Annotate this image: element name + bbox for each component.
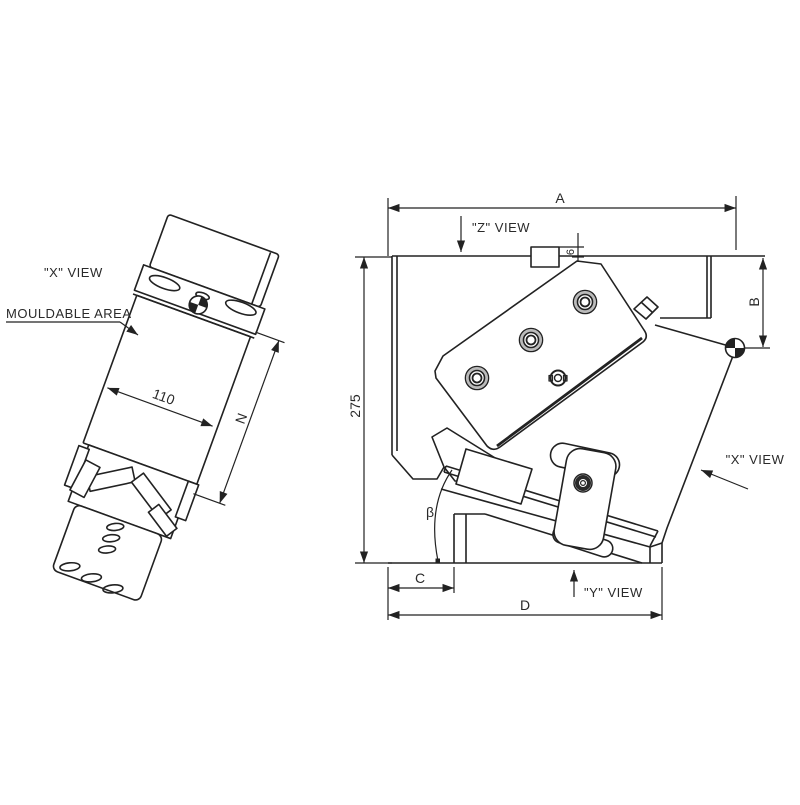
left-view-label: "X" VIEW <box>44 265 103 280</box>
dim-beta <box>435 470 452 563</box>
x-view-arrow <box>701 470 748 489</box>
dim-label-a: A <box>555 190 565 206</box>
right-view: A 275 B 6 C D <box>347 190 785 620</box>
drawing-sheet: 110 N "X" VIEW MOULDABLE AREA <box>0 0 800 800</box>
left-view: 110 N "X" VIEW MOULDABLE AREA <box>6 212 312 622</box>
dim-label-beta: β <box>426 504 434 520</box>
z-view-label: "Z" VIEW <box>472 220 530 235</box>
dim-label-275: 275 <box>347 394 363 418</box>
y-view-label: "Y" VIEW <box>584 585 643 600</box>
dim-label-n: N <box>232 411 250 426</box>
datum-target-icon <box>726 339 745 358</box>
plate-tab <box>634 297 658 319</box>
stop-block <box>531 247 559 267</box>
foot-step <box>454 514 485 563</box>
dim-label-6: 6 <box>565 249 577 255</box>
x-view-label: "X" VIEW <box>726 452 785 467</box>
mouldable-area-label: MOULDABLE AREA <box>6 306 132 321</box>
tilted-plate <box>435 261 646 449</box>
technical-drawing: 110 N "X" VIEW MOULDABLE AREA <box>0 0 800 800</box>
dim-label-b: B <box>746 297 762 306</box>
dim-6 <box>559 233 584 262</box>
dim-label-d: D <box>520 597 530 613</box>
dim-label-c: C <box>415 570 425 586</box>
